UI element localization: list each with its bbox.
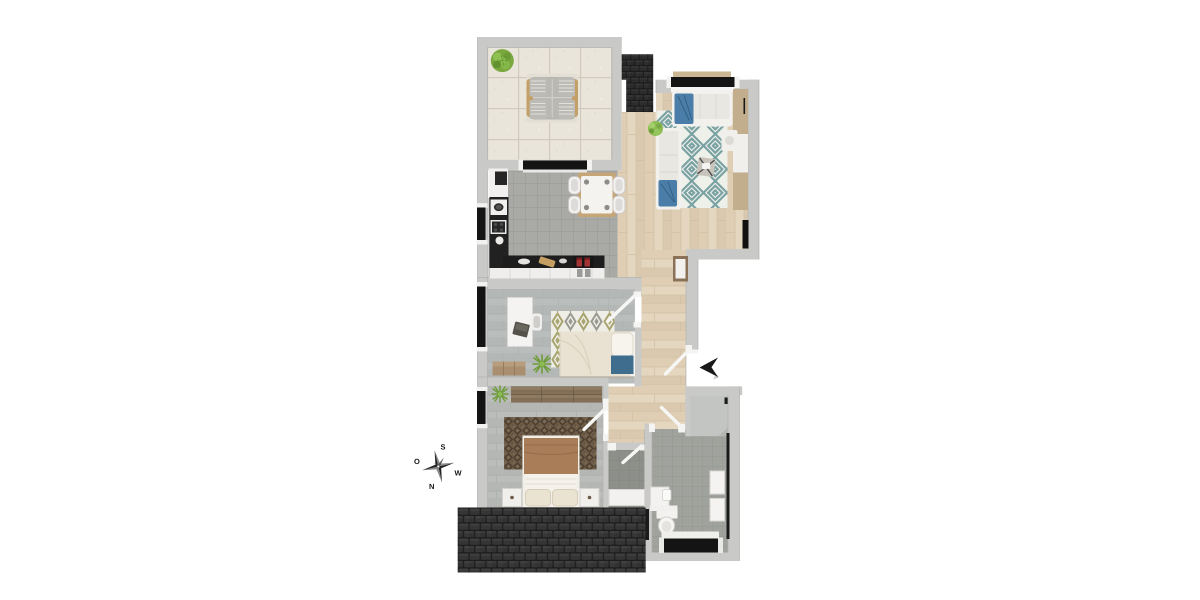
svg-text:N: N xyxy=(429,482,434,491)
svg-text:W: W xyxy=(455,469,463,478)
svg-text:O: O xyxy=(414,457,420,466)
svg-text:S: S xyxy=(441,443,446,452)
